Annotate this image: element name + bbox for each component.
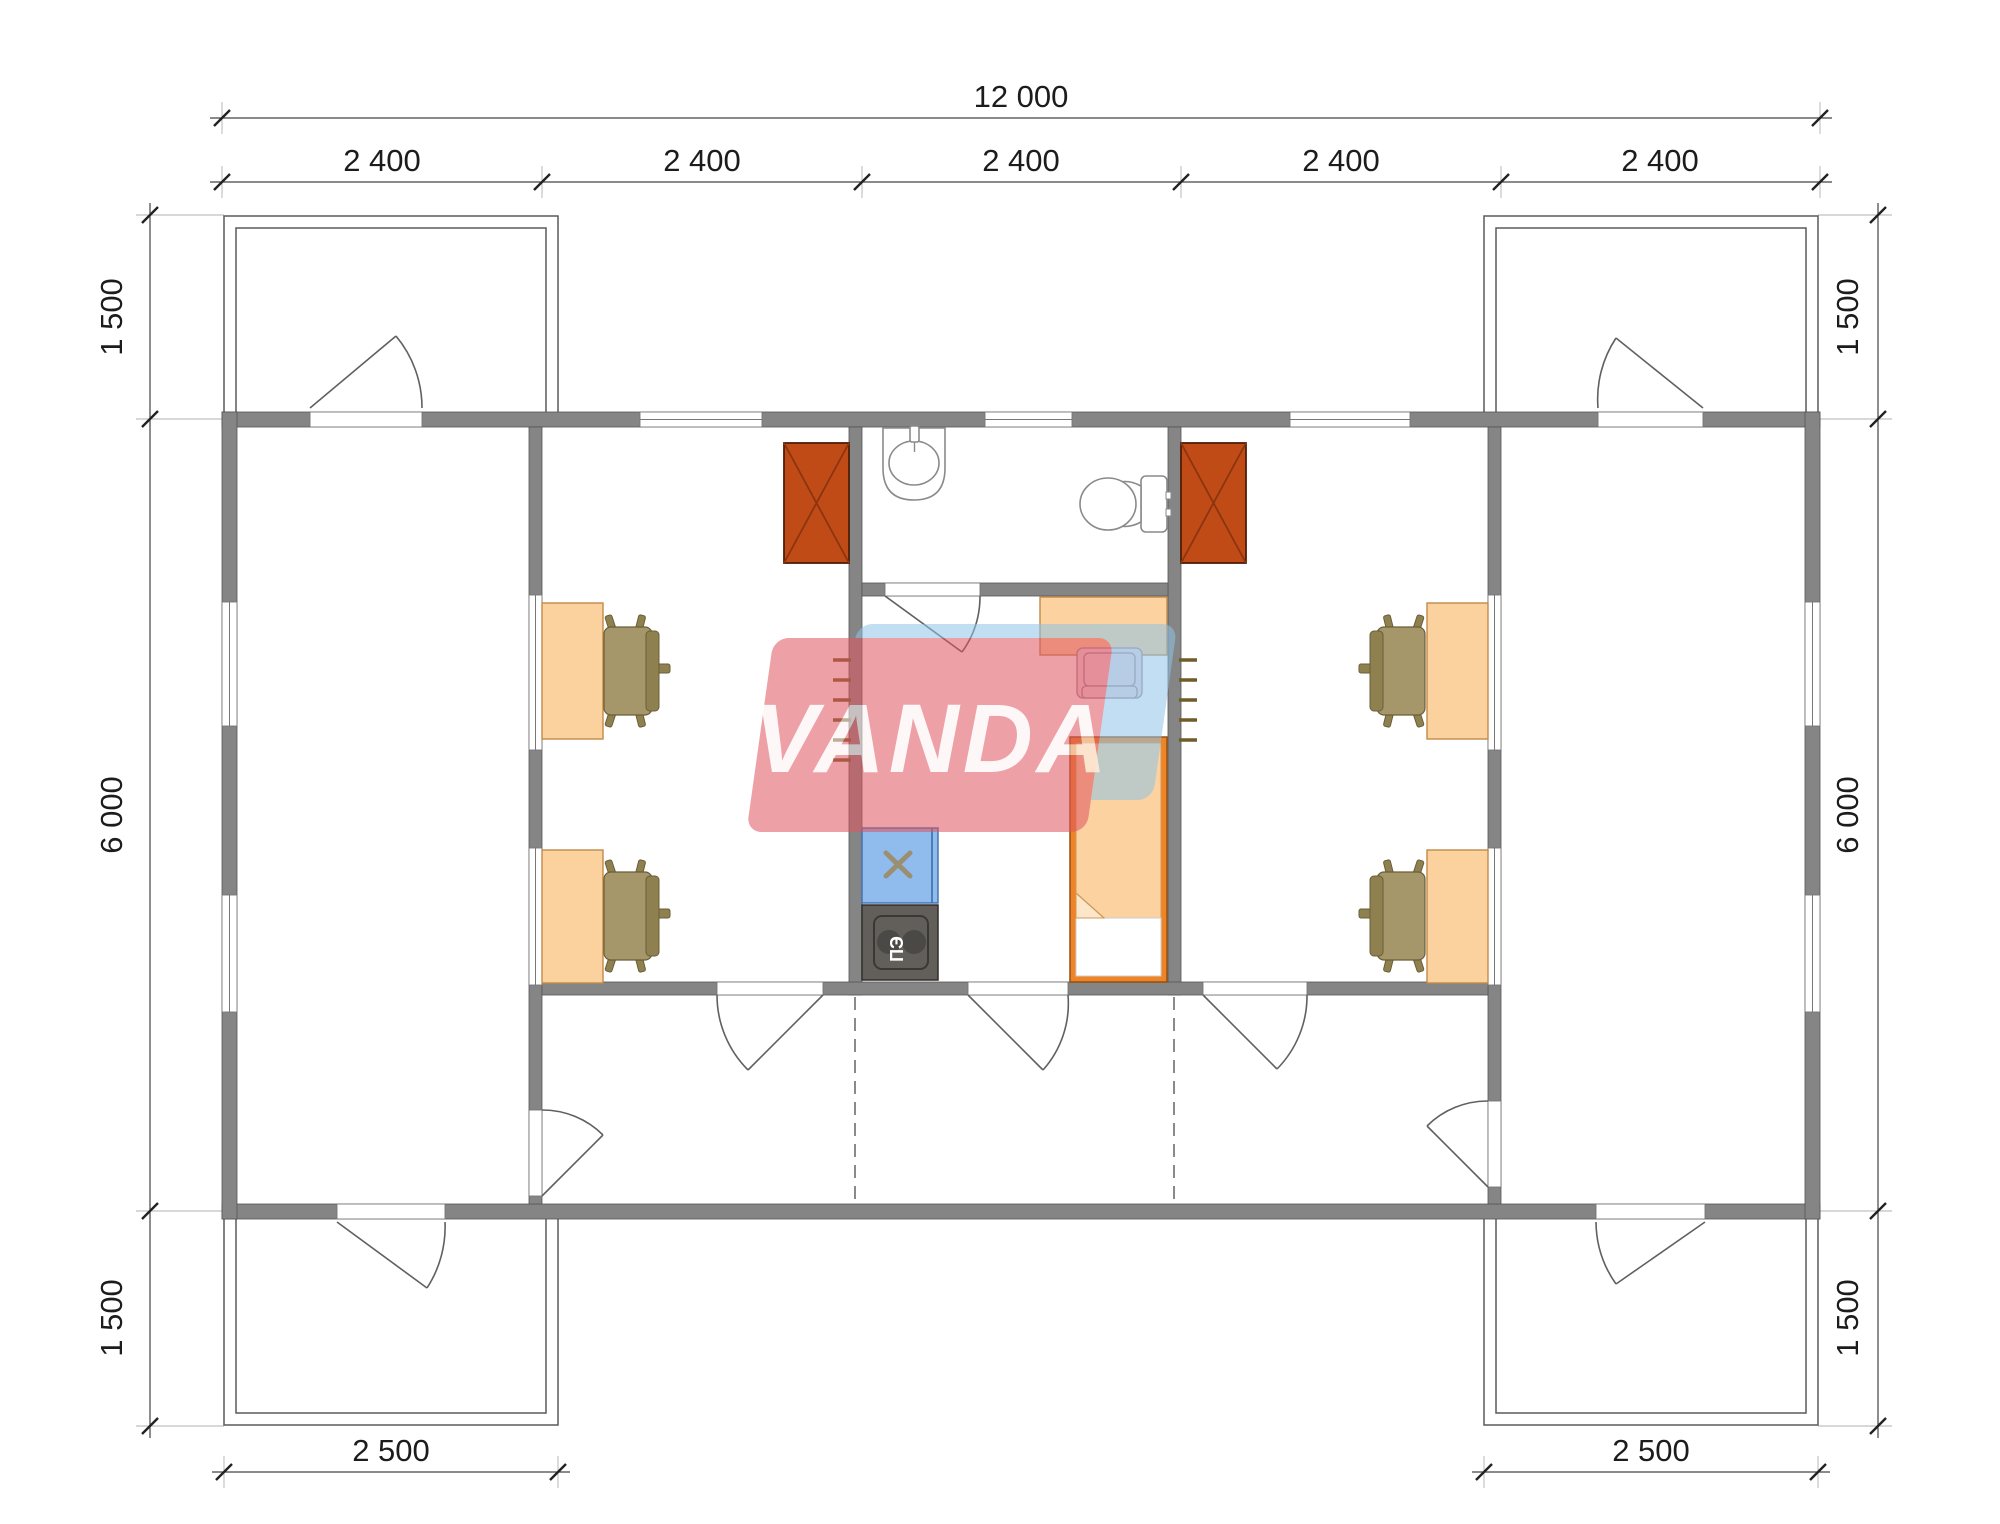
porch-outline-icon: [224, 1219, 558, 1425]
dim-bay-5: 2 400: [1621, 143, 1699, 178]
window-icon: [529, 595, 542, 750]
office-chair-icon: [604, 859, 670, 972]
dim-right-bottom: 1 500: [1830, 1279, 1865, 1357]
dim-right-top: 1 500: [1830, 278, 1865, 356]
dim-porch-bottom-left: 2 500: [352, 1433, 430, 1468]
office-desk-icon: [542, 603, 603, 739]
door-swing-icon: [1427, 1101, 1488, 1187]
window-icon: [1290, 412, 1410, 427]
wall-exterior-right: [1805, 412, 1820, 1219]
floor-plan-page: 12 000 2 400 2 400 2 400 2 400 2 400 1 5…: [0, 0, 2000, 1524]
office-desk-icon: [1427, 850, 1488, 983]
door-swing-icon: [310, 336, 422, 408]
loft-edges: [855, 997, 1174, 1202]
porch-outline-icon: [1484, 216, 1818, 412]
dim-left-bottom: 1 500: [94, 1279, 129, 1357]
window-icon: [1488, 595, 1501, 750]
electric-stove-label: ПЭ: [887, 936, 907, 962]
office-desk-icon: [542, 850, 603, 983]
wood-stove-icon: [784, 443, 849, 563]
window-icon: [222, 895, 237, 1012]
wall-interior-c: [1488, 427, 1501, 1204]
window-icon: [1805, 895, 1820, 1012]
window-icon: [222, 602, 237, 726]
floor-plan-svg: 12 000 2 400 2 400 2 400 2 400 2 400 1 5…: [0, 0, 2000, 1524]
door-swing-icon: [717, 995, 823, 1070]
door-swing-icon: [968, 995, 1068, 1070]
window-icon: [529, 848, 542, 985]
door-swing-icon: [542, 1110, 603, 1196]
dim-top-total: 12 000: [974, 79, 1069, 114]
office-chair-icon: [1359, 859, 1425, 972]
dim-bay-4: 2 400: [1302, 143, 1380, 178]
door-swing-icon: [1596, 1222, 1705, 1284]
washbasin-icon: [883, 426, 945, 500]
window-icon: [985, 412, 1072, 427]
watermark-text: VANDA: [753, 684, 1111, 793]
window-icon: [1805, 602, 1820, 726]
window-icon: [1488, 848, 1501, 985]
door-swing-icon: [1203, 995, 1307, 1069]
dim-bay-1: 2 400: [343, 143, 421, 178]
loft-ladder-icon: [1179, 660, 1197, 740]
dim-right-mid: 6 000: [1830, 776, 1865, 854]
toilet-icon: [1080, 476, 1171, 532]
wall-interior-v1: [529, 427, 542, 1204]
porch-outline-icon: [224, 216, 558, 412]
door-swing-icon: [337, 1222, 445, 1288]
dim-porch-bottom-right: 2 500: [1612, 1433, 1690, 1468]
office-chair-icon: [1359, 614, 1425, 727]
dim-left-mid: 6 000: [94, 776, 129, 854]
office-desk-icon: [1427, 603, 1488, 739]
electric-stove-icon: ПЭ: [862, 905, 938, 980]
dim-left-top: 1 500: [94, 278, 129, 356]
dim-bay-2: 2 400: [663, 143, 741, 178]
wood-stove-icon: [1181, 443, 1246, 563]
dim-bay-3: 2 400: [982, 143, 1060, 178]
porch-outline-icon: [1484, 1219, 1818, 1425]
door-swing-icon: [1598, 338, 1703, 408]
window-icon: [640, 412, 762, 427]
wall-exterior-bottom: [222, 1204, 1820, 1219]
office-chair-icon: [604, 614, 670, 727]
kitchen-sink-icon: [862, 828, 938, 903]
wall-exterior-left: [222, 412, 237, 1219]
